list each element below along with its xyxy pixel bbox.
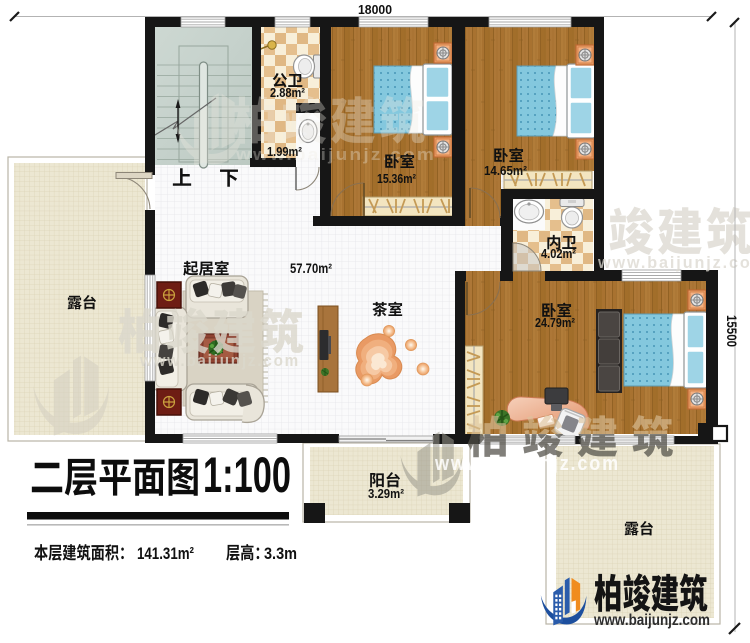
svg-text:4.02m²: 4.02m² — [541, 246, 577, 261]
svg-text:18000: 18000 — [358, 2, 392, 17]
svg-text:3.3m: 3.3m — [264, 544, 297, 563]
svg-text:2.88m²: 2.88m² — [270, 85, 306, 100]
svg-text:www.baijunjz.com: www.baijunjz.com — [593, 612, 710, 629]
svg-text:15500: 15500 — [724, 315, 739, 347]
svg-text:141.31m²: 141.31m² — [137, 544, 194, 563]
svg-text:57.70m²: 57.70m² — [290, 261, 332, 276]
svg-text:3.29m²: 3.29m² — [368, 487, 404, 501]
svg-text:15.36m²: 15.36m² — [377, 171, 417, 186]
svg-text:www.baijunjz.com: www.baijunjz.com — [597, 253, 750, 272]
svg-text:www.baijunjz.com: www.baijunjz.com — [139, 351, 300, 370]
svg-text:24.79m²: 24.79m² — [535, 315, 576, 330]
svg-text:14.65m²: 14.65m² — [484, 163, 528, 178]
svg-text:1.99m²: 1.99m² — [267, 144, 303, 159]
svg-text:1:100: 1:100 — [203, 447, 291, 503]
svg-text:www.baijunjz.com: www.baijunjz.com — [434, 453, 620, 475]
